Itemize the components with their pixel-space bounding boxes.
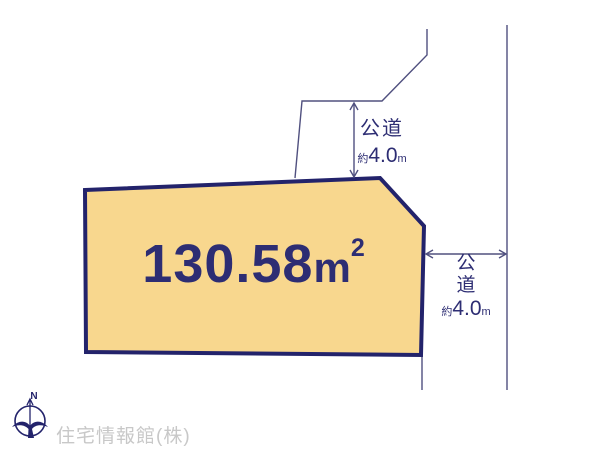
parcel-area-value: 130.58 — [142, 234, 313, 294]
road-top-label: 公道 約4.0m — [330, 119, 434, 166]
road-top-width-approx: 約 — [357, 153, 368, 165]
company-watermark: 住宅情報館(株) — [56, 421, 191, 448]
road-right-name-char2: 道 — [426, 276, 506, 295]
parcel-area-label: 130.58m2 — [85, 236, 422, 291]
road-right-width-approx: 約 — [441, 306, 452, 318]
road-right-label: 公 道 約4.0m — [426, 254, 506, 319]
road-top-width-unit: m — [398, 153, 407, 165]
parcel-area-unit: m — [313, 244, 350, 291]
road-right-name-char1: 公 — [426, 254, 506, 273]
compass-north-label: N — [30, 391, 37, 402]
plot-plan-canvas: N 130.58m2 公道 約4.0m 公 道 約4.0m 住宅情報館(株) — [0, 0, 600, 450]
road-top-name: 公道 — [330, 119, 434, 139]
road-right-width: 約4.0m — [426, 298, 506, 319]
road-top-width: 約4.0m — [330, 145, 434, 166]
plot-plan-drawing: N — [0, 0, 600, 450]
compass-icon: N — [12, 391, 48, 438]
road-top-width-value: 4.0 — [368, 144, 397, 167]
parcel-area-exponent: 2 — [351, 234, 365, 262]
road-right-width-unit: m — [482, 306, 491, 318]
road-right-width-value: 4.0 — [452, 297, 481, 320]
